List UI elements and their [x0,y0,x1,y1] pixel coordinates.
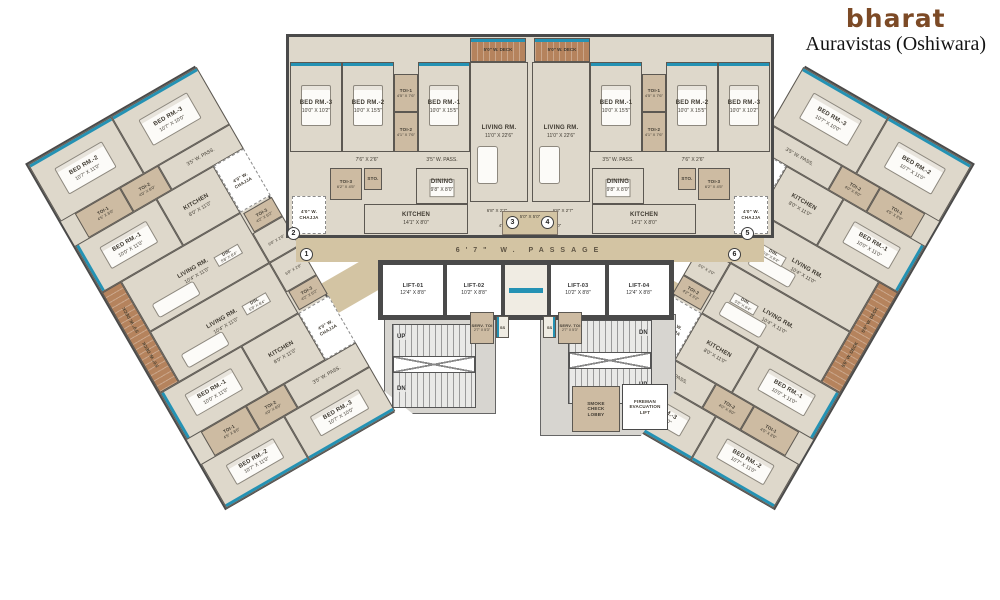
room-size: 6'0" X 2'0" [698,262,716,275]
room-name: LIVING RM. [544,125,579,133]
floor-plan: bharat Auravistas (Oshiwara) BED RM.-210… [0,0,1000,600]
store: STO. [678,168,696,190]
center-unit-3: 5'0" W. DECK LIVING RM.11'0" X 22'6" BED… [288,36,530,236]
room-size: 6'2" X 4'5" [705,184,723,189]
living-room: LIVING RM.11'0" X 22'6" [532,62,590,202]
center-unit-4: 5'0" W. DECK LIVING RM.11'0" X 22'6" BED… [530,36,772,236]
room-size: 10'0" X 15'5" [602,108,630,114]
room-name-2: CHAJJA [741,215,760,221]
lift-03: LIFT-0310'2" X 8'8" [551,265,605,315]
room-size: 2'7" X 5'3" [562,328,578,332]
room-name: 3'5" W. PASS. [186,147,216,168]
service-shaft: SS [543,316,556,338]
deck: 5'0" W. DECK [470,38,526,62]
service-toilet: SERV. TOI2'7" X 5'3" [470,312,494,344]
lift-name: LIFT-03 [568,283,589,290]
main-passage: 6'7" W. PASSAGE [296,236,764,262]
shaft-label: SS [547,325,552,330]
stair-landing [393,356,475,372]
lift-02: LIFT-0210'2" X 8'8" [447,265,501,315]
room-size: 2'7" X 5'3" [474,328,490,332]
dining: DINING9'8" X 8'0" [416,168,468,204]
room-name: SMOKE CHECK LOBBY [579,401,613,418]
lift-04: LIFT-0412'4" X 8'8" [609,265,669,315]
passage: 3'5" W. PASS. [416,154,468,166]
room-name: KITCHEN [630,212,658,220]
lobby-window [509,288,543,293]
lift-size: 12'4" X 8'8" [400,290,425,297]
room-size: 11'0" X 22'6" [485,133,513,139]
room-name: DINING [431,179,453,187]
deck-label: 5'0" W. DECK [548,47,577,53]
room-size: 10'0" X 15'5" [678,108,706,114]
room-size: 5'0" X 5'0" [520,214,540,219]
room-size: 4'1" X 7'6" [645,132,663,137]
bedroom-1: BED RM.-110'0" X 15'5" [418,62,470,152]
service-toilet: SERV. TOI2'7" X 5'3" [558,312,582,344]
bedroom-2: BED RM.-210'0" X 15'5" [342,62,394,152]
corridor: 7'6" X 2'6" [342,154,392,166]
unit-number-1: 1 [300,248,313,261]
stair-down-label: DN [638,330,649,336]
unit-number-5: 5 [741,227,754,240]
room-size: 10'0" X 10'2" [730,108,758,114]
living-room: LIVING RM.11'0" X 22'6" [470,62,528,202]
room-size: 6'2" X 4'5" [337,184,355,189]
brand-header: bharat Auravistas (Oshiwara) [806,6,987,56]
passage: 3'5" W. PASS. [592,154,644,166]
service-shaft: SS [496,316,509,338]
lift-name: LIFT-04 [629,283,650,290]
room-name: DINING [607,179,629,187]
room-name: BED RM.-2 [676,100,708,108]
lift-size: 12'4" X 8'8" [626,290,651,297]
bedroom-2: BED RM.-210'0" X 15'5" [666,62,718,152]
deck-label: 5'0" W. DECK [860,306,879,334]
room-size: 9'8" X 8'0" [607,187,630,193]
stair-up-label: UP [396,334,406,340]
room-size: 9'8" X 8'0" [431,187,454,193]
fireman-evacuation-lift: FIREMAN EVACUATION LIFT [622,384,668,430]
room-name: BED RM.-1 [600,100,632,108]
passage-label: 6'7" W. PASSAGE [456,247,605,254]
room-size: 10'0" X 15'5" [430,108,458,114]
shaft-label: SS [500,325,505,330]
unit-number-6: 6 [728,248,741,261]
kitchen: KITCHEN14'1" X 8'0" [592,204,696,234]
deck: 5'0" W. DECK [534,38,590,62]
toilet-2: TOI-24'1" X 7'6" [394,112,418,152]
toilet-3: TOI-36'2" X 4'5" [698,168,730,200]
room-size: 4'5" X 7'6" [397,93,415,98]
kitchen: KITCHEN14'1" X 8'0" [364,204,468,234]
lift-size: 10'2" X 8'8" [461,290,486,297]
room-size: 4'5" X 7'6" [645,93,663,98]
room-size: 7'6" X 2'6" [356,157,379,163]
room-size: 6'0" X 2'0" [284,262,302,275]
room-name: FIREMAN EVACUATION LIFT [627,399,663,416]
toilet-1: TOI-14'5" X 7'6" [394,74,418,112]
bedroom-3: BED RM.-310'0" X 10'2" [290,62,342,152]
lift-size: 10'2" X 8'8" [565,290,590,297]
room-name: BED RM.-3 [728,100,760,108]
room-name: 3'5" W. PASS. [602,157,633,163]
unit-number-2: 2 [287,227,300,240]
store: STO. [364,168,382,190]
room-name: STO. [681,176,692,182]
bedroom-1: BED RM.-110'0" X 15'5" [590,62,642,152]
room-size: 14'1" X 8'0" [403,220,428,226]
stair-down-label: DN [396,386,407,392]
room-name-2: CHAJJA [299,215,318,221]
room-size: 6'0" X 2'0" [267,233,285,246]
room-size: 10'0" X 10'2" [302,108,330,114]
corridor: 7'6" X 2'6" [668,154,718,166]
lift-01: LIFT-0112'4" X 8'8" [383,265,443,315]
dining: DINING9'8" X 8'0" [592,168,644,204]
unit-number-4: 4 [541,216,554,229]
room-size: 4'1" X 7'6" [397,132,415,137]
deck-label: 5'0" W. DECK [484,47,513,53]
stair-landing [569,352,651,368]
room-size: 14'1" X 8'0" [631,220,656,226]
room-size: 7'6" X 2'6" [682,157,705,163]
room-name: BED RM.-1 [428,100,460,108]
deck-label: 5'0" W. DECK [840,341,859,369]
smoke-check-lobby: SMOKE CHECK LOBBY [572,386,620,432]
room-name: LIVING RM. [482,125,517,133]
project-title: Auravistas (Oshiwara) [806,33,987,56]
room-name: KITCHEN [402,212,430,220]
lift-name: LIFT-02 [464,283,485,290]
room-name: BED RM.-3 [300,100,332,108]
room-size: 11'0" X 22'6" [547,133,575,139]
brand-logo: bharat [806,6,987,31]
room-name: 3'5" W. PASS. [784,147,814,168]
room-name: 3'5" W. PASS. [312,365,342,386]
room-name: STO. [367,176,378,182]
room-name: 3'5" W. PASS. [426,157,457,163]
lift-name: LIFT-01 [403,283,424,290]
toilet-3: TOI-36'2" X 4'5" [330,168,362,200]
room-name: BED RM.-2 [352,100,384,108]
room-size: 10'0" X 15'5" [354,108,382,114]
bedroom-3: BED RM.-310'0" X 10'2" [718,62,770,152]
toilet-2: TOI-24'1" X 7'6" [642,112,666,152]
unit-number-3: 3 [506,216,519,229]
toilet-1: TOI-14'5" X 7'6" [642,74,666,112]
